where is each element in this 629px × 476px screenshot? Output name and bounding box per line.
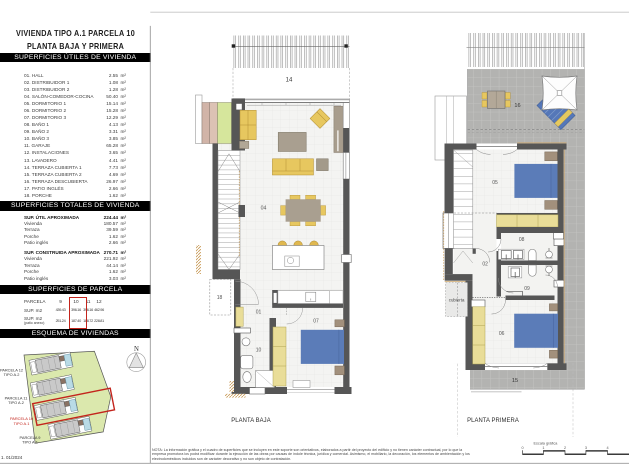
svg-text:07: 07 [313, 319, 319, 325]
svg-text:TIPO A.1: TIPO A.1 [14, 421, 30, 426]
svg-text:Escala gráfica: Escala gráfica [534, 442, 559, 446]
svg-text:10: 10 [256, 348, 262, 354]
svg-text:0: 0 [522, 446, 524, 450]
svg-text:cubierta: cubierta [449, 298, 465, 303]
svg-text:06: 06 [499, 331, 505, 337]
svg-text:08: 08 [519, 237, 525, 243]
svg-text:05: 05 [492, 180, 498, 186]
svg-text:TIPO A.1: TIPO A.1 [22, 440, 38, 445]
svg-text:02: 02 [482, 262, 488, 268]
svg-text:3: 3 [585, 446, 587, 450]
svg-text:16: 16 [514, 103, 520, 109]
svg-text:TIPO A.2: TIPO A.2 [4, 372, 20, 377]
svg-text:14: 14 [286, 78, 293, 84]
svg-text:TIPO A.2: TIPO A.2 [8, 400, 24, 405]
svg-text:2: 2 [564, 446, 566, 450]
svg-text:18: 18 [217, 295, 223, 301]
svg-text:01: 01 [256, 310, 262, 316]
svg-text:15: 15 [512, 378, 518, 384]
svg-text:09: 09 [524, 286, 530, 292]
svg-text:04: 04 [261, 206, 267, 212]
svg-text:4: 4 [606, 446, 608, 450]
svg-text:1: 1 [542, 446, 544, 450]
svg-text:N: N [134, 346, 139, 353]
